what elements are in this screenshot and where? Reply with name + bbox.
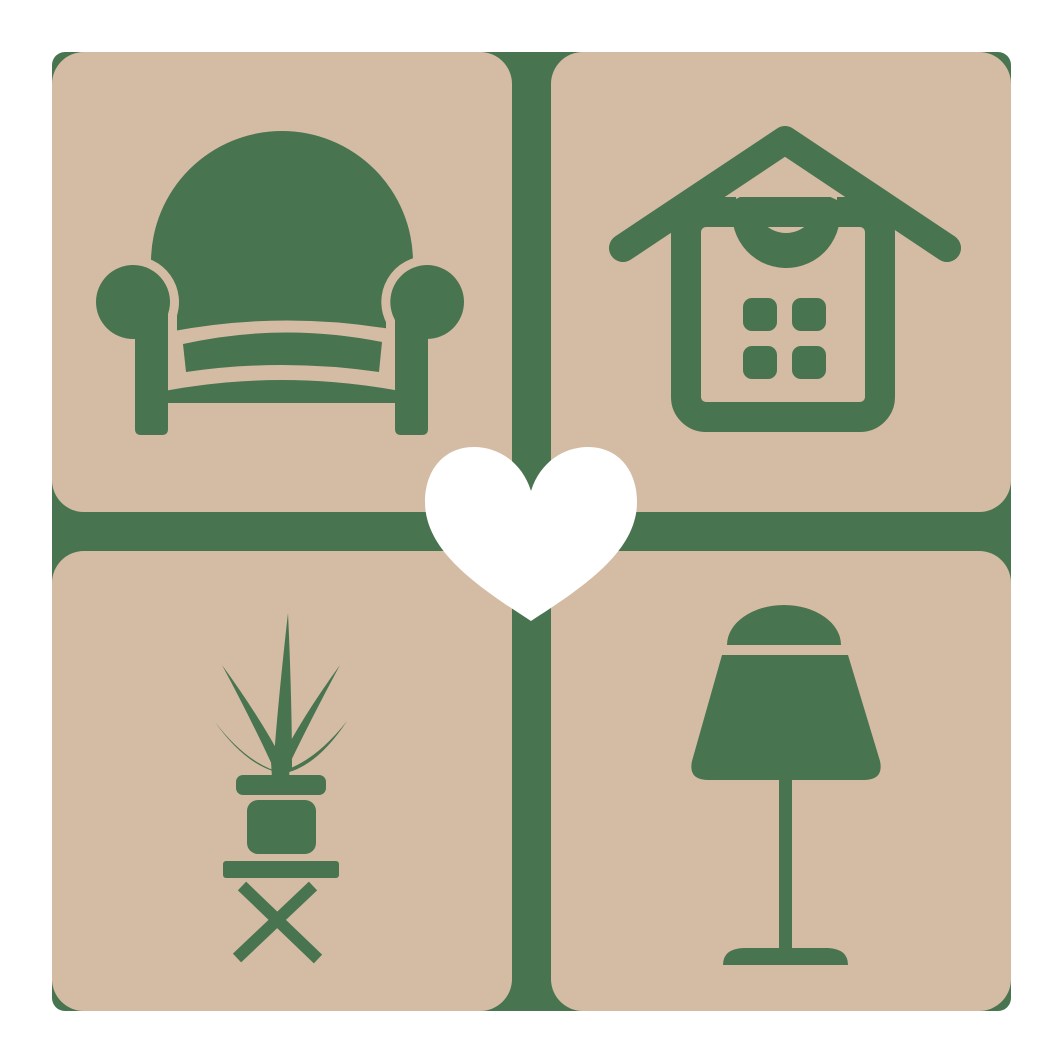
window-pane — [743, 346, 777, 379]
house-icon — [551, 52, 1011, 512]
plant-leaves — [215, 613, 347, 779]
pot-body — [247, 800, 316, 854]
armchair-icon — [52, 52, 512, 512]
window-pane — [792, 346, 826, 379]
lamp-pole — [779, 780, 792, 948]
window-pane — [792, 298, 826, 331]
home-decor-logo — [52, 52, 1011, 1011]
heart-icon — [423, 445, 639, 623]
tile-house — [551, 52, 1011, 512]
armchair-left-arm — [96, 265, 170, 435]
tile-armchair — [52, 52, 512, 512]
house-roof — [623, 140, 947, 248]
armchair-right-arm — [390, 265, 464, 435]
window-pane — [743, 298, 777, 331]
lamp-cap — [727, 605, 841, 645]
heart-shape — [425, 447, 637, 621]
table-cross-legs — [237, 886, 318, 959]
lamp-shade — [691, 655, 880, 780]
center-heart — [423, 445, 639, 623]
table-top — [223, 861, 339, 878]
pot-rim — [236, 775, 326, 795]
lamp-base — [723, 948, 848, 965]
house-window — [743, 298, 826, 379]
